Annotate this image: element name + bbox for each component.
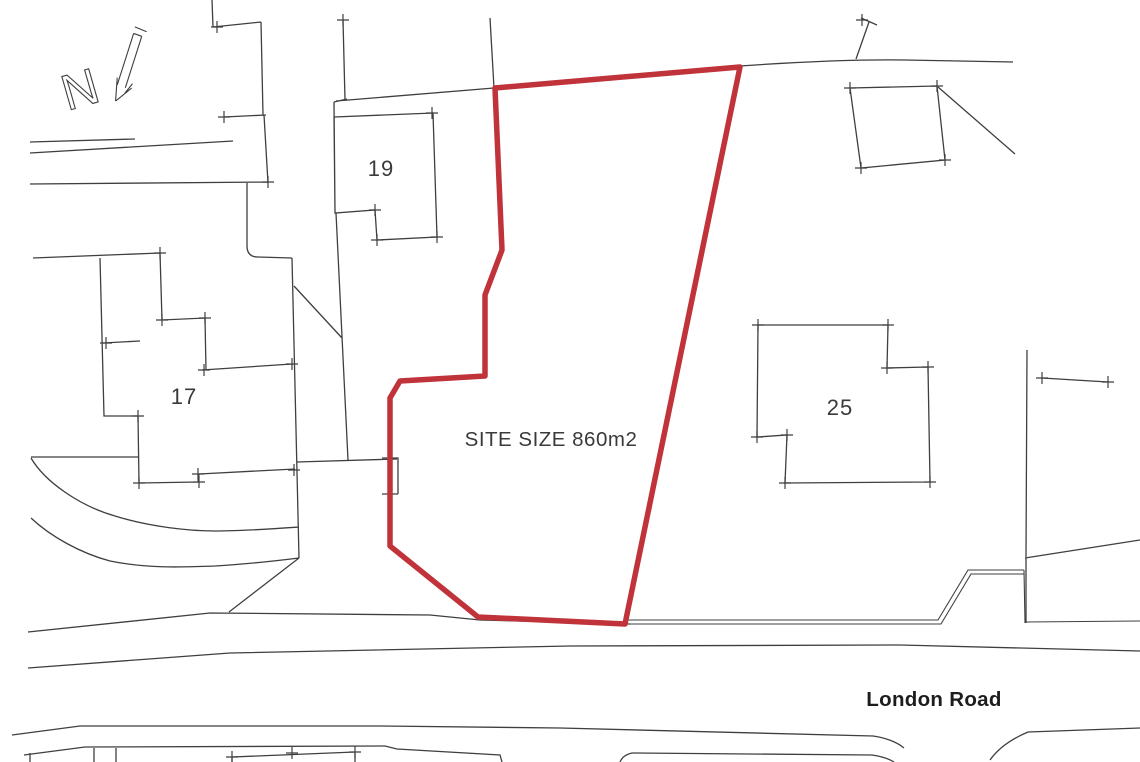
label-site-size: SITE SIZE 860m2: [465, 428, 638, 451]
label-house-17: 17: [171, 384, 197, 409]
label-house-25: 25: [827, 395, 853, 420]
bottom-buildings: [12, 726, 1140, 762]
outbuilding-outline: [850, 86, 1015, 168]
landscaping-curves: [31, 457, 299, 612]
site-plan-drawing: N 19 17 25 SITE SIZE 860m2 London Road: [0, 0, 1140, 762]
gate-bracket: [297, 458, 398, 494]
site-boundary: [390, 67, 740, 624]
north-arrow: N: [50, 24, 164, 121]
north-arrow-letter: N: [55, 57, 105, 121]
corner-tick-marks: [100, 14, 1114, 762]
plot-boundary-right: [1025, 350, 1140, 623]
site-plan: N 19 17 25 SITE SIZE 860m2 London Road: [0, 0, 1140, 762]
north-arrow-icon: [97, 24, 162, 101]
label-road-name: London Road: [866, 688, 1001, 711]
house-17-outline: [33, 253, 295, 483]
pavement-lines: [627, 570, 1140, 624]
label-house-19: 19: [368, 156, 394, 181]
